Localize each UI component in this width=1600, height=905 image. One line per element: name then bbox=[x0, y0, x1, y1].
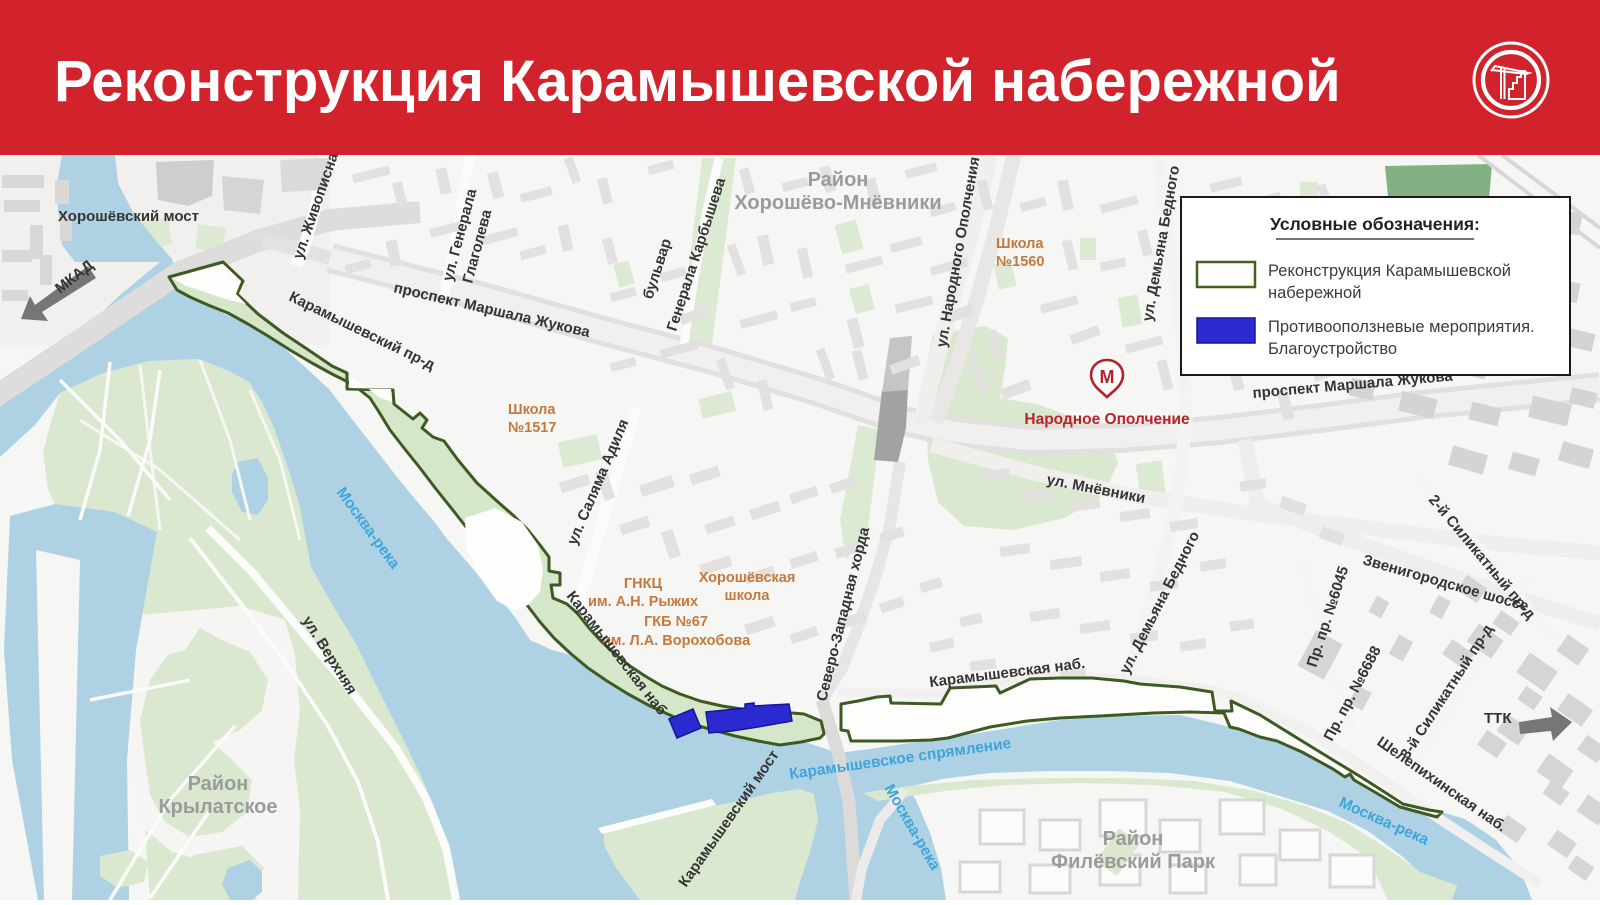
svg-text:Хорошёвский мост: Хорошёвский мост bbox=[58, 208, 199, 225]
svg-text:Реконструкция Карамышевской: Реконструкция Карамышевской bbox=[1268, 262, 1511, 280]
svg-text:Хорошёвская: Хорошёвская bbox=[699, 570, 796, 586]
svg-text:№1517: №1517 bbox=[508, 420, 556, 436]
svg-text:М: М bbox=[1100, 367, 1115, 387]
svg-text:Район: Район bbox=[808, 169, 869, 191]
svg-text:ТТК: ТТК bbox=[1484, 710, 1512, 727]
svg-text:Хорошёво-Мнёвники: Хорошёво-Мнёвники bbox=[734, 192, 941, 214]
svg-text:Район: Район bbox=[1103, 828, 1164, 850]
svg-text:им. Л.А. Ворохобова: им. Л.А. Ворохобова bbox=[602, 633, 751, 649]
svg-text:Школа: Школа bbox=[508, 402, 556, 418]
svg-text:Условные обозначения:: Условные обозначения: bbox=[1270, 214, 1480, 234]
svg-text:им. А.Н. Рыжих: им. А.Н. Рыжих bbox=[588, 594, 698, 610]
svg-text:Реконструкция Карамышевской на: Реконструкция Карамышевской набережной bbox=[54, 49, 1341, 114]
svg-text:набережной: набережной bbox=[1268, 284, 1361, 302]
svg-text:Школа: Школа bbox=[996, 236, 1044, 252]
svg-text:ГКБ №67: ГКБ №67 bbox=[644, 614, 708, 630]
svg-text:Филёвский Парк: Филёвский Парк bbox=[1051, 851, 1216, 873]
svg-text:Благоустройство: Благоустройство bbox=[1268, 340, 1397, 358]
svg-text:ГНКЦ: ГНКЦ bbox=[624, 576, 663, 592]
svg-text:Район: Район bbox=[188, 773, 249, 795]
svg-text:№1560: №1560 bbox=[996, 254, 1044, 270]
svg-text:Противооползневые мероприятия.: Противооползневые мероприятия. bbox=[1268, 318, 1535, 336]
svg-text:Крылатское: Крылатское bbox=[158, 796, 277, 818]
svg-text:Народное Ополчение: Народное Ополчение bbox=[1024, 411, 1190, 428]
svg-text:школа: школа bbox=[725, 588, 771, 604]
